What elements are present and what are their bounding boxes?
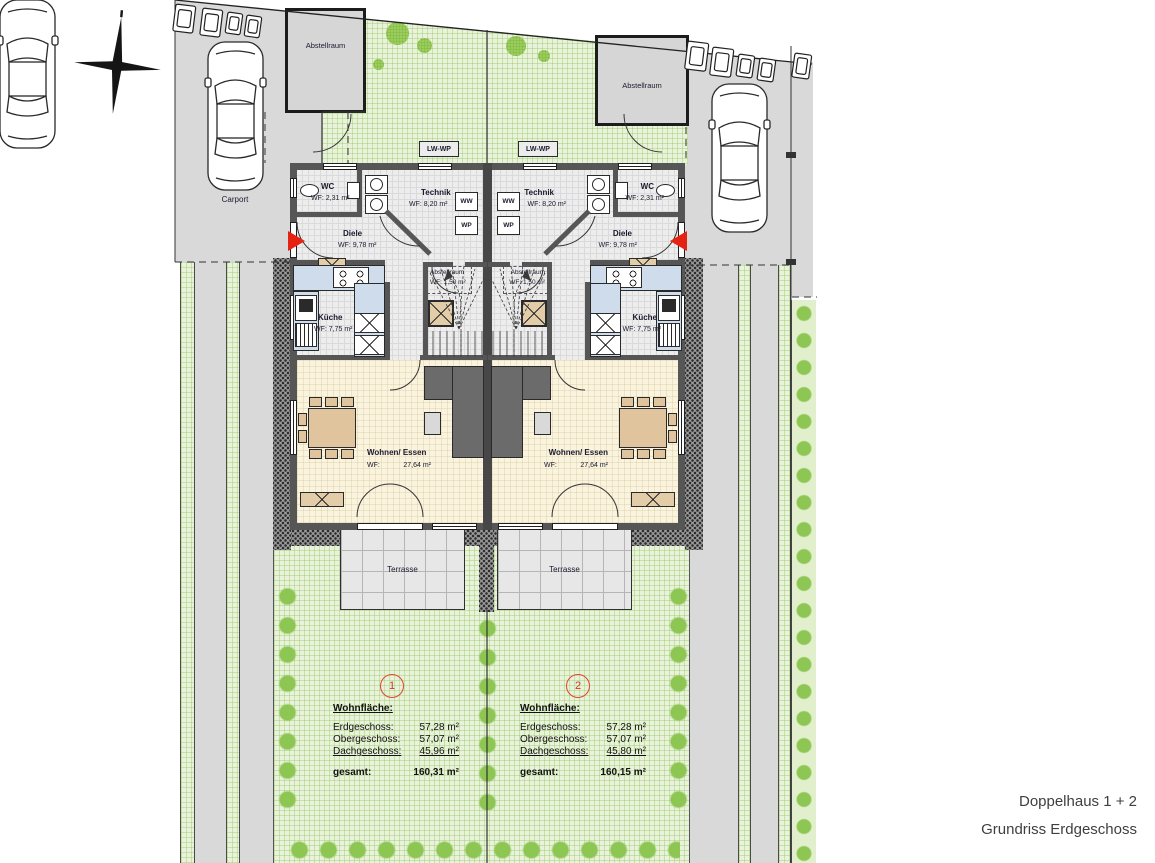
room-label-wc: WC [321,183,334,192]
fridge-icon [590,313,621,333]
shed-left-label: Abstellraum [285,42,366,50]
area-row: Dachgeschoss: 45,80 m² [520,746,646,758]
area-row-label: Obergeschoss: [333,734,400,746]
carport-right-label: Carport [690,179,790,188]
area-label: WF: [544,462,557,470]
area-value: 27,64 m² [580,462,608,470]
tree [373,59,384,70]
washer-icon [587,175,610,194]
shed-right-label: Abstellraum [595,82,689,90]
area-row-label: Obergeschoss: [520,734,587,746]
chair [637,449,650,459]
side-table [424,412,441,435]
area-row-value: 57,07 m² [420,734,459,746]
carport-left-label: Carport [185,196,285,205]
terrace-label: Terrasse [498,566,631,575]
chair [341,397,354,407]
terrace-right: Terrasse [497,528,632,610]
room-label-diele: Diele [613,230,632,239]
area-heading: Wohnfläche: [520,703,646,714]
area-label: WF: [367,462,380,470]
walkway [240,262,273,863]
dining-table [308,408,356,448]
chair [325,449,338,459]
stair-shaft [428,300,454,327]
walkway [195,262,226,863]
area-value: 27,64 m² [403,462,431,470]
chair [653,397,666,407]
side-table [534,412,551,435]
hot-water-tank: WW [455,192,478,211]
room-area-kueche: WF: 7,75 m² [314,326,353,334]
gravel-west-strip [273,258,291,550]
walkway-grass-strip [180,262,195,863]
heat-pump-unit: WP [455,216,478,235]
room-area-kueche: WF: 7,75 m² [622,326,661,334]
area-row: Erdgeschoss: 57,28 m² [520,722,646,734]
heat-pump-left: LW-WP [419,141,459,157]
kitchen-cabinet [658,323,680,347]
gravel-party-strip [479,516,494,612]
area-total-row: gesamt: 160,15 m² [520,767,646,779]
room-label-wc: WC [641,183,654,192]
room-area-abstellraum: WF: 1,50 m² [509,279,545,286]
chair [668,430,677,443]
hedge-right-column [667,582,690,812]
hedge-left-column [276,582,299,812]
area-total-label: gesamt: [333,767,371,779]
area-row-label: Dachgeschoss: [520,746,588,758]
chair [637,397,650,407]
room-label-abstellraum: Abstellraum [511,269,545,276]
fridge-icon [354,313,385,333]
floor-plan-page: Terrasse Terrasse Abstellraum Abstellrau… [0,0,1155,863]
dining-table [619,408,667,448]
terrace-label: Terrasse [341,566,464,575]
dryer-icon [587,195,610,214]
chair [309,397,322,407]
room-label-technik: Technik [524,189,554,198]
unit-number-1: 1 [380,674,404,698]
area-table-unit-1: Wohnfläche: Erdgeschoss: 57,28 m² Oberge… [333,703,459,779]
unit-2: WC WF: 2,31 m² Technik WF: 8,20 m² WW WP… [488,163,685,530]
walkway [751,265,778,863]
area-total-value: 160,31 m² [413,767,459,779]
room-area-technik: WF: 8,20 m² [409,201,448,209]
walkway-grass-strip [778,265,791,863]
hedge-bottom-row [285,838,680,862]
area-row: Dachgeschoss: 45,96 m² [333,746,459,758]
chair [325,397,338,407]
tree [538,50,550,62]
driveway-sliver-right [791,62,813,297]
room-area-diele: WF: 9,78 m² [598,242,637,250]
washer-icon [365,175,388,194]
heat-pump-unit: WP [497,216,520,235]
sofa [491,366,523,458]
kitchen-sink-icon [658,295,680,321]
area-row-label: Erdgeschoss: [520,722,581,734]
area-row-value: 45,96 m² [420,746,459,758]
chair [309,449,322,459]
room-label-technik: Technik [421,189,451,198]
kitchen-sink-icon [295,295,317,321]
tree [417,38,432,53]
room-area-wc: WF: 2,31 m² [311,195,350,203]
chair [298,413,307,426]
area-total-label: gesamt: [520,767,558,779]
area-row-value: 57,28 m² [607,722,646,734]
tree [506,36,526,56]
compass-icon [70,6,166,117]
walkway-grass-strip [226,262,240,863]
sideboard [300,492,344,507]
hot-water-tank: WW [497,192,520,211]
room-area-technik: WF: 8,20 m² [527,201,566,209]
dryer-icon [365,195,388,214]
terrace-left: Terrasse [340,528,465,610]
room-area-abstellraum: WF: 1,50 m² [430,279,466,286]
sofa [452,366,484,458]
room-area-wohnen: WF: 27,64 m² [544,462,608,470]
pantry-icon [590,335,621,355]
area-row-label: Erdgeschoss: [333,722,394,734]
chair [341,449,354,459]
unit-1: WC WF: 2,31 m² Technik WF: 8,20 m² WW WP… [290,163,487,530]
shed-left [285,8,366,113]
car-icon [0,0,58,148]
walkway-grass-strip [738,265,751,863]
chair [298,430,307,443]
room-area-diele: WF: 9,78 m² [338,242,377,250]
stair-shaft [521,300,547,327]
room-area-wohnen: WF: 27,64 m² [367,462,431,470]
area-row: Obergeschoss: 57,07 m² [520,734,646,746]
area-row-value: 45,80 m² [607,746,646,758]
drawing-subtitle: Grundriss Erdgeschoss [981,821,1137,838]
chair [621,397,634,407]
room-label-kueche: Küche [318,314,342,323]
area-row: Erdgeschoss: 57,28 m² [333,722,459,734]
area-row-label: Dachgeschoss: [333,746,401,758]
heat-pump-right: LW-WP [518,141,558,157]
room-label-diele: Diele [343,230,362,239]
room-label-wohnen: Wohnen/ Essen [367,449,426,458]
area-row: Obergeschoss: 57,07 m² [333,734,459,746]
area-heading: Wohnfläche: [333,703,459,714]
gravel-east-strip [685,258,703,550]
area-total-row: gesamt: 160,31 m² [333,767,459,779]
room-label-kueche: Küche [633,314,657,323]
chair [621,449,634,459]
drawing-title: Doppelhaus 1 + 2 [1019,793,1137,810]
tree [386,22,409,45]
chair [653,449,666,459]
room-label-wohnen: Wohnen/ Essen [549,449,608,458]
area-row-value: 57,28 m² [420,722,459,734]
area-table-unit-2: Wohnfläche: Erdgeschoss: 57,28 m² Oberge… [520,703,646,779]
chair [668,413,677,426]
sideboard [631,492,675,507]
area-total-value: 160,15 m² [600,767,646,779]
hedge-center-column [476,614,499,810]
east-hedge-row [791,300,816,863]
room-label-abstellraum: Abstellraum [430,269,464,276]
unit-number-2: 2 [566,674,590,698]
pantry-icon [354,335,385,355]
area-row-value: 57,07 m² [607,734,646,746]
room-area-wc: WF: 2,31 m² [625,195,664,203]
